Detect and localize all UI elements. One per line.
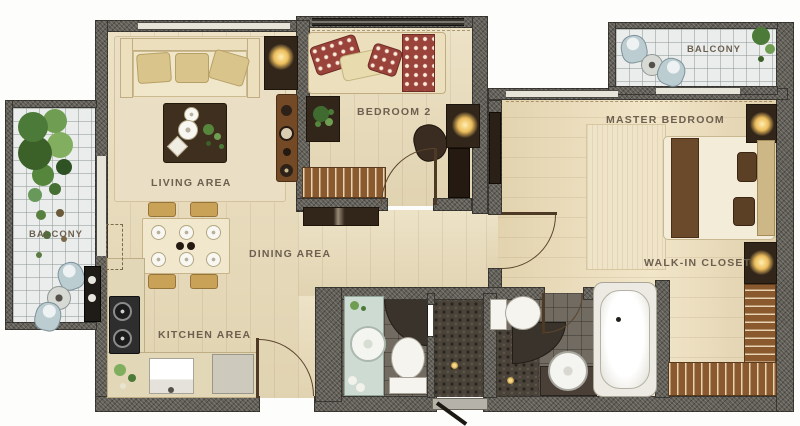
wall-bottom-a [95, 396, 260, 412]
living-lamp-glow [268, 44, 294, 70]
dining-plate-3 [206, 225, 221, 240]
dining-plate-5 [179, 252, 194, 267]
balcony-tr-plant [752, 27, 770, 45]
shared-toilet-tank [389, 377, 427, 394]
sofa-cushion-2 [175, 53, 209, 83]
sofa-back [120, 38, 260, 51]
window-master [506, 90, 618, 98]
wall-balcony-left-top [5, 100, 97, 108]
master-curtain-line [506, 101, 772, 102]
room-label-living: LIVING AREA [151, 177, 231, 189]
kitchen-decor-plant [114, 364, 126, 376]
master-lamp-top-glow [750, 112, 774, 136]
wall-balcony-tr-top [608, 22, 778, 29]
dining-chair-2 [190, 202, 218, 217]
entry-hall-sconce [451, 362, 458, 369]
dining-plate-1 [151, 225, 166, 240]
master-shower-head [507, 377, 514, 384]
sofa-arm-left [120, 38, 133, 98]
window-bedroom2 [312, 18, 464, 26]
bedroom2-desk [448, 148, 470, 198]
dining-plate-4 [151, 252, 166, 267]
room-label-bedroom2: BEDROOM 2 [357, 106, 431, 118]
wall-hall-left-b [427, 336, 435, 398]
kitchen-dashed-unit [106, 224, 123, 270]
coffee-table-plant [203, 124, 214, 135]
console-decor-4 [280, 164, 293, 177]
room-label-dining: DINING AREA [249, 248, 331, 260]
kitchen-faucet [168, 387, 174, 393]
dining-chair-1 [148, 202, 176, 217]
room-label-walk-in-closet: WALK-IN CLOSET [644, 257, 751, 269]
room-label-balcony-top-right: BALCONY [687, 44, 741, 55]
stove-burner-2 [113, 329, 132, 348]
sliding-door-master-balcony [656, 87, 740, 95]
kitchen-appliance [212, 354, 254, 394]
balcony-ac-unit [84, 266, 101, 322]
floor-plan-canvas: LIVING AREA DINING AREA KITCHEN AREA BED… [0, 0, 800, 426]
stove-burner-1 [113, 302, 132, 321]
sofa-arm-right [247, 38, 260, 98]
console-decor-1 [281, 105, 292, 116]
bedroom2-lamp-glow [452, 112, 478, 138]
master-headboard [757, 140, 775, 236]
room-label-kitchen: KITCHEN AREA [158, 329, 251, 341]
master-bed-runner [671, 138, 699, 238]
balcony-left-plants [18, 112, 48, 142]
wall-bottom-c [483, 396, 794, 412]
room-label-master-bedroom: MASTER BEDROOM [606, 114, 725, 126]
bathtub-inner [600, 290, 650, 389]
shared-bath-decor-soap [348, 376, 357, 385]
entry-hall-floor [433, 293, 483, 397]
coffee-table-plate-2 [178, 120, 198, 140]
wall-balcony-left-side [5, 100, 13, 330]
tv-sideboard [303, 207, 379, 226]
wall-right [776, 22, 794, 412]
console-decor-3 [283, 148, 291, 156]
bathtub-drain [616, 317, 621, 322]
balcony-ac-dots [88, 276, 96, 284]
bedroom2-blanket [402, 34, 435, 92]
bedroom2-curtain-line [312, 30, 470, 31]
bedroom2-plant [313, 106, 329, 122]
room-label-balcony-left: BALCONY [29, 229, 83, 240]
shared-bath-sink [350, 326, 386, 362]
wall-balcony-tr-left [608, 22, 616, 95]
master-pillow-1 [737, 152, 757, 182]
master-lamp-bottom-glow [749, 250, 774, 275]
master-rug [586, 124, 666, 270]
wall-bedroom2-bottom-b [433, 198, 472, 211]
console-decor-2 [279, 126, 294, 141]
master-tv-panel [489, 112, 501, 184]
dining-chair-4 [190, 274, 218, 289]
shared-bath-decor-plant [350, 301, 359, 310]
dining-plate-2 [179, 225, 194, 240]
dining-centerpiece [176, 242, 184, 250]
wall-hall-left-a [427, 293, 435, 305]
dining-chair-3 [148, 274, 176, 289]
bedroom2-wardrobe [302, 167, 386, 198]
window-living [138, 22, 290, 30]
master-pillow-2 [733, 197, 755, 226]
dining-plate-6 [206, 252, 221, 267]
shared-toilet-bowl [391, 337, 425, 379]
master-toilet-bowl [505, 296, 541, 330]
closet-wardrobe-bottom [668, 362, 777, 396]
wall-plumbing [315, 287, 342, 402]
sofa-cushion-1 [136, 52, 172, 84]
master-bath-sink [548, 351, 588, 391]
